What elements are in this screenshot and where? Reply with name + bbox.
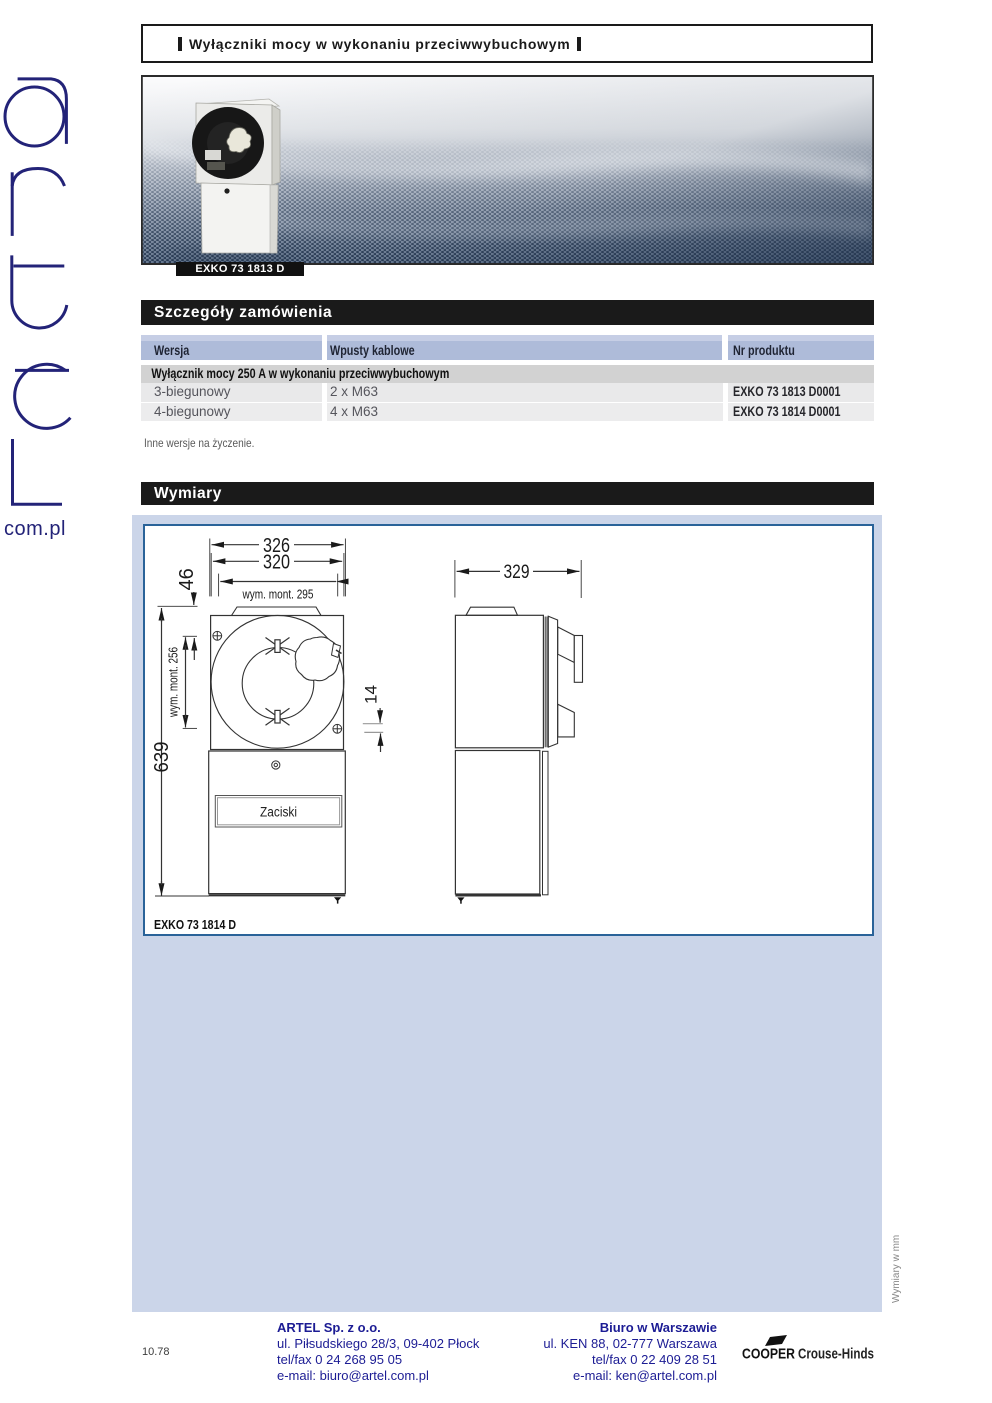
svg-text:wym. mont. 256: wym. mont. 256 <box>167 647 181 718</box>
svg-text:Crouse-Hinds: Crouse-Hinds <box>798 1347 874 1363</box>
svg-text:COOPER: COOPER <box>742 1346 795 1363</box>
svg-text:320: 320 <box>263 551 290 573</box>
svg-text:329: 329 <box>504 562 530 583</box>
svg-text:wym. mont. 295: wym. mont. 295 <box>242 588 314 602</box>
svg-text:639: 639 <box>151 742 173 773</box>
svg-text:EXKO 73 1814 D: EXKO 73 1814 D <box>154 917 236 932</box>
svg-text:14: 14 <box>362 685 381 704</box>
svg-text:Zaciski: Zaciski <box>260 805 297 820</box>
svg-text:46: 46 <box>176 568 198 590</box>
